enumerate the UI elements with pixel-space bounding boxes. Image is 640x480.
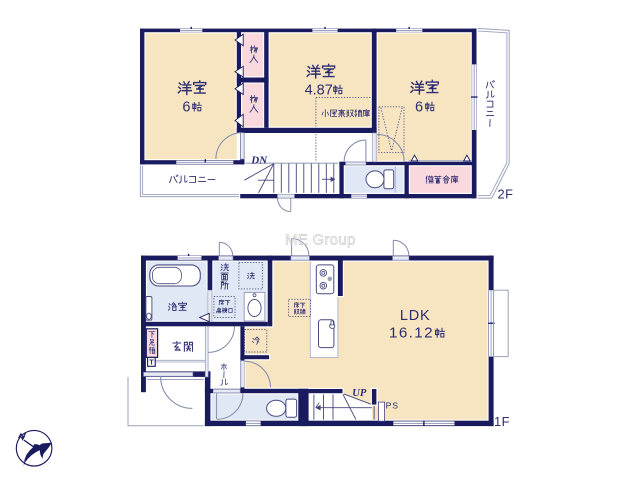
svg-text:T: T xyxy=(149,358,154,367)
svg-text:4.87: 4.87 xyxy=(305,82,333,98)
svg-text:1F: 1F xyxy=(494,414,510,429)
svg-text:6: 6 xyxy=(415,99,423,115)
svg-text:LDK: LDK xyxy=(400,308,431,324)
svg-text:ME Group: ME Group xyxy=(285,232,356,249)
svg-text:PS: PS xyxy=(386,401,399,411)
svg-text:2F: 2F xyxy=(498,186,514,201)
svg-text:6: 6 xyxy=(182,99,190,115)
svg-text:UP: UP xyxy=(352,388,367,399)
svg-text:16.12: 16.12 xyxy=(389,324,434,341)
svg-text:DN: DN xyxy=(250,154,268,166)
